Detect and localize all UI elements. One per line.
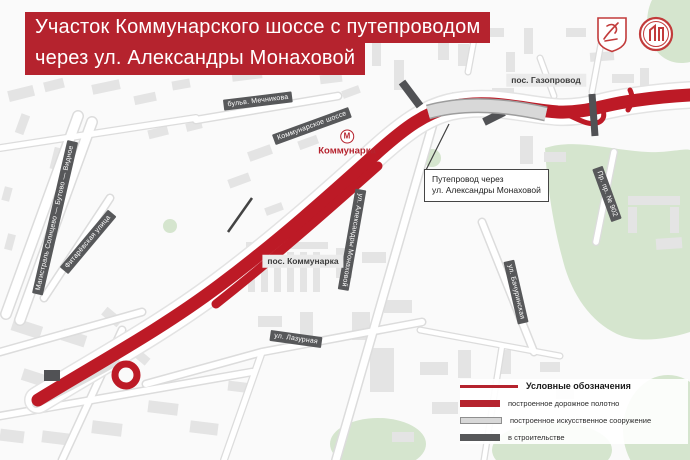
overpass-callout: Путепровод через ул. Александры Монахово…: [424, 169, 549, 202]
construction-department-icon: [637, 15, 675, 53]
metro-icon: М: [340, 130, 354, 144]
callout-line2: ул. Александры Монаховой: [432, 185, 541, 196]
metro-station-name: Коммунарка: [318, 146, 376, 157]
legend-item-built-structure: построенное искусственное сооружение: [460, 416, 688, 425]
legend-label-built-structure: построенное искусственное сооружение: [510, 416, 651, 425]
legend-swatch-built-structure: [460, 417, 502, 424]
header-logos: [595, 15, 675, 53]
callout-line1: Путепровод через: [432, 174, 541, 185]
legend-swatch-built-road: [460, 400, 500, 407]
legend-item-built-road: построенное дорожное полотно: [460, 399, 688, 408]
settlement-label-gazoprovod: пос. Газопровод: [506, 74, 586, 87]
legend-label-under-construction: в строительстве: [508, 433, 565, 442]
ramp-loop: [115, 364, 137, 386]
title-banner: Участок Коммунарского шоссе с путепровод…: [25, 12, 490, 75]
metro-station-kommunarka: М Коммунарка: [318, 130, 376, 157]
title-line1: Участок Коммунарского шоссе с путепровод…: [25, 12, 490, 43]
legend-title: Условные обозначения: [526, 381, 631, 391]
infographic-road-map: бульв. Мечникова Коммунарское шоссе Маги…: [0, 0, 690, 460]
legend-swatch-under-construction: [460, 434, 500, 441]
settlement-label-kommunarka: пос. Коммунарка: [262, 255, 343, 268]
legend: Условные обозначения построенное дорожно…: [460, 379, 688, 444]
title-line2: через ул. Александры Монаховой: [25, 43, 365, 74]
crossing-line: [228, 198, 252, 232]
legend-accent-line: [460, 385, 518, 388]
overpass-structure: [428, 106, 546, 114]
moscow-coat-of-arms-icon: [595, 15, 629, 53]
legend-item-under-construction: в строительстве: [460, 433, 688, 442]
legend-label-built-road: построенное дорожное полотно: [508, 399, 619, 408]
